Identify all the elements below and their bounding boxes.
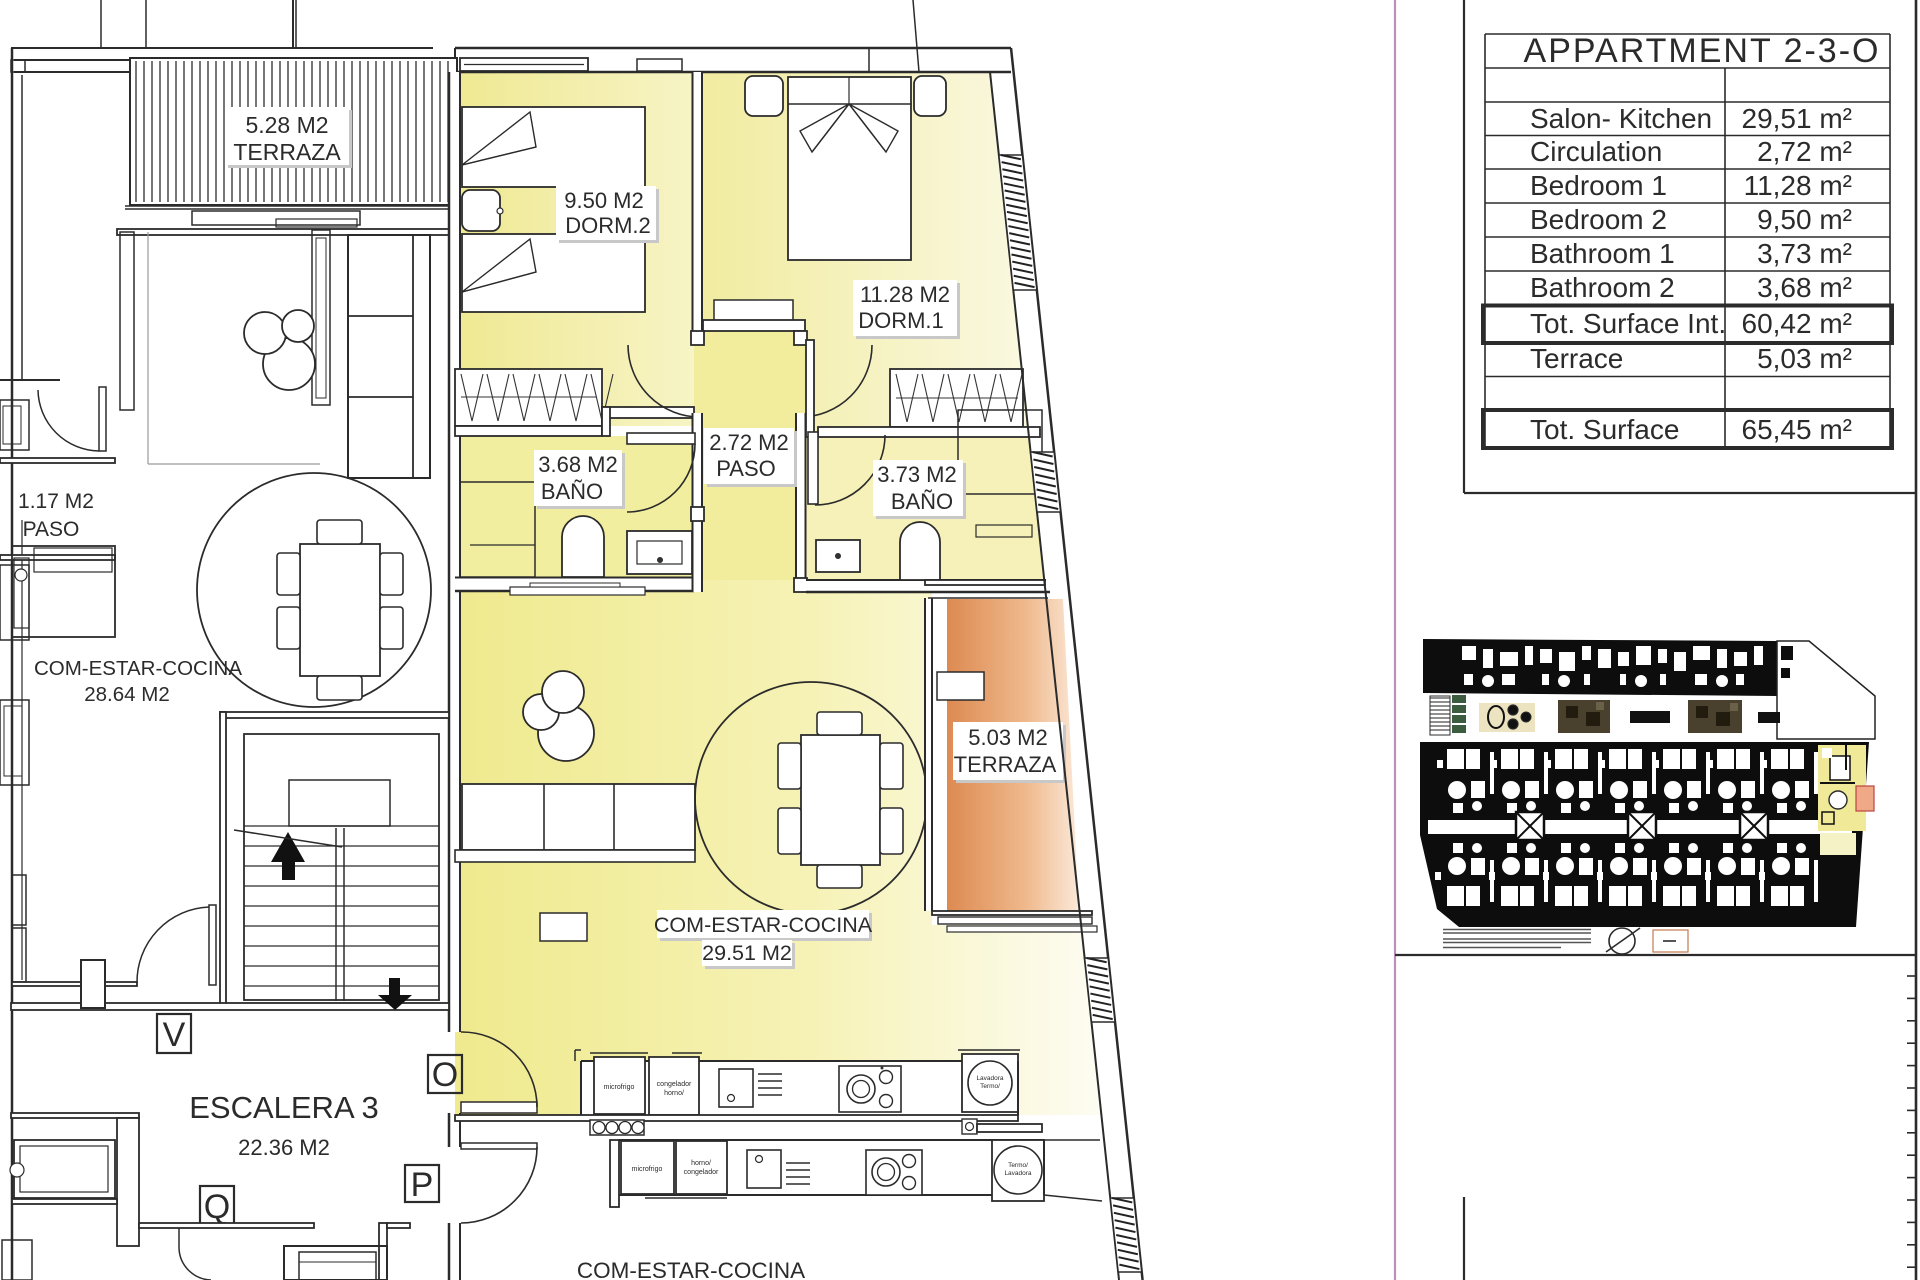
svg-text:3,73 m²: 3,73 m²	[1757, 238, 1852, 269]
svg-text:horno/: horno/	[691, 1160, 711, 1167]
svg-text:5,03 m²: 5,03 m²	[1757, 343, 1852, 374]
svg-text:microfrigo: microfrigo	[632, 1166, 663, 1173]
svg-text:Bedroom 2: Bedroom 2	[1530, 204, 1667, 235]
svg-text:Tot. Surface: Tot. Surface	[1530, 414, 1679, 445]
svg-text:Q: Q	[204, 1188, 230, 1226]
svg-text:2.72 M2: 2.72 M2	[709, 430, 789, 455]
svg-text:3,68 m²: 3,68 m²	[1757, 272, 1852, 303]
svg-text:9.50 M2: 9.50 M2	[564, 188, 644, 213]
svg-text:Lavadora: Lavadora	[1004, 1170, 1031, 1177]
svg-text:O: O	[432, 1056, 458, 1094]
svg-text:Tot. Surface Int.: Tot. Surface Int.	[1530, 308, 1726, 339]
svg-text:PASO: PASO	[23, 518, 80, 541]
svg-text:microfrigo: microfrigo	[604, 1084, 635, 1091]
svg-text:congelador: congelador	[684, 1169, 719, 1176]
svg-text:BAÑO: BAÑO	[541, 479, 603, 504]
svg-text:Circulation: Circulation	[1530, 136, 1662, 167]
svg-text:congelador: congelador	[657, 1081, 692, 1088]
svg-text:DORM.2: DORM.2	[565, 213, 651, 238]
svg-text:9,50 m²: 9,50 m²	[1757, 204, 1852, 235]
svg-text:60,42 m²: 60,42 m²	[1742, 308, 1853, 339]
svg-text:11,28 m²: 11,28 m²	[1744, 170, 1852, 201]
svg-text:COM-ESTAR-COCINA: COM-ESTAR-COCINA	[34, 657, 242, 680]
svg-text:Terrace: Terrace	[1530, 343, 1623, 374]
svg-text:Termo/: Termo/	[980, 1083, 1000, 1090]
svg-text:29.51 M2: 29.51 M2	[702, 941, 792, 965]
svg-text:PASO: PASO	[716, 456, 776, 481]
svg-text:11.28 M2: 11.28 M2	[860, 282, 950, 307]
svg-text:Bathroom 2: Bathroom 2	[1530, 272, 1675, 303]
svg-text:Salon- Kitchen: Salon- Kitchen	[1530, 103, 1712, 134]
svg-text:5.28 M2: 5.28 M2	[245, 112, 328, 138]
svg-text:28.64 M2: 28.64 M2	[84, 683, 169, 706]
svg-text:29,51 m²: 29,51 m²	[1742, 103, 1853, 134]
svg-text:65,45 m²: 65,45 m²	[1742, 414, 1853, 445]
svg-text:COM-ESTAR-COCINA: COM-ESTAR-COCINA	[577, 1258, 805, 1280]
svg-text:P: P	[411, 1166, 434, 1204]
svg-text:3.73 M2: 3.73 M2	[877, 462, 957, 487]
svg-text:horno/: horno/	[664, 1090, 684, 1097]
svg-text:3.68 M2: 3.68 M2	[538, 452, 618, 477]
svg-text:BAÑO: BAÑO	[891, 489, 953, 514]
svg-text:22.36 M2: 22.36 M2	[238, 1135, 330, 1160]
svg-text:Bathroom 1: Bathroom 1	[1530, 238, 1675, 269]
svg-text:Bedroom 1: Bedroom 1	[1530, 170, 1667, 201]
svg-text:DORM.1: DORM.1	[858, 308, 944, 333]
svg-text:APPARTMENT 2-3-O: APPARTMENT 2-3-O	[1524, 32, 1881, 70]
svg-text:ESCALERA 3: ESCALERA 3	[189, 1090, 379, 1125]
svg-text:V: V	[163, 1016, 186, 1054]
svg-text:Termo/: Termo/	[1008, 1162, 1028, 1169]
svg-text:Lavadora: Lavadora	[976, 1075, 1003, 1082]
svg-text:TERRAZA: TERRAZA	[954, 752, 1057, 777]
svg-text:2,72 m²: 2,72 m²	[1757, 136, 1852, 167]
svg-text:COM-ESTAR-COCINA: COM-ESTAR-COCINA	[654, 913, 873, 937]
svg-text:5.03 M2: 5.03 M2	[968, 725, 1048, 750]
svg-text:1.17 M2: 1.17 M2	[18, 490, 94, 513]
svg-text:TERRAZA: TERRAZA	[233, 139, 341, 165]
